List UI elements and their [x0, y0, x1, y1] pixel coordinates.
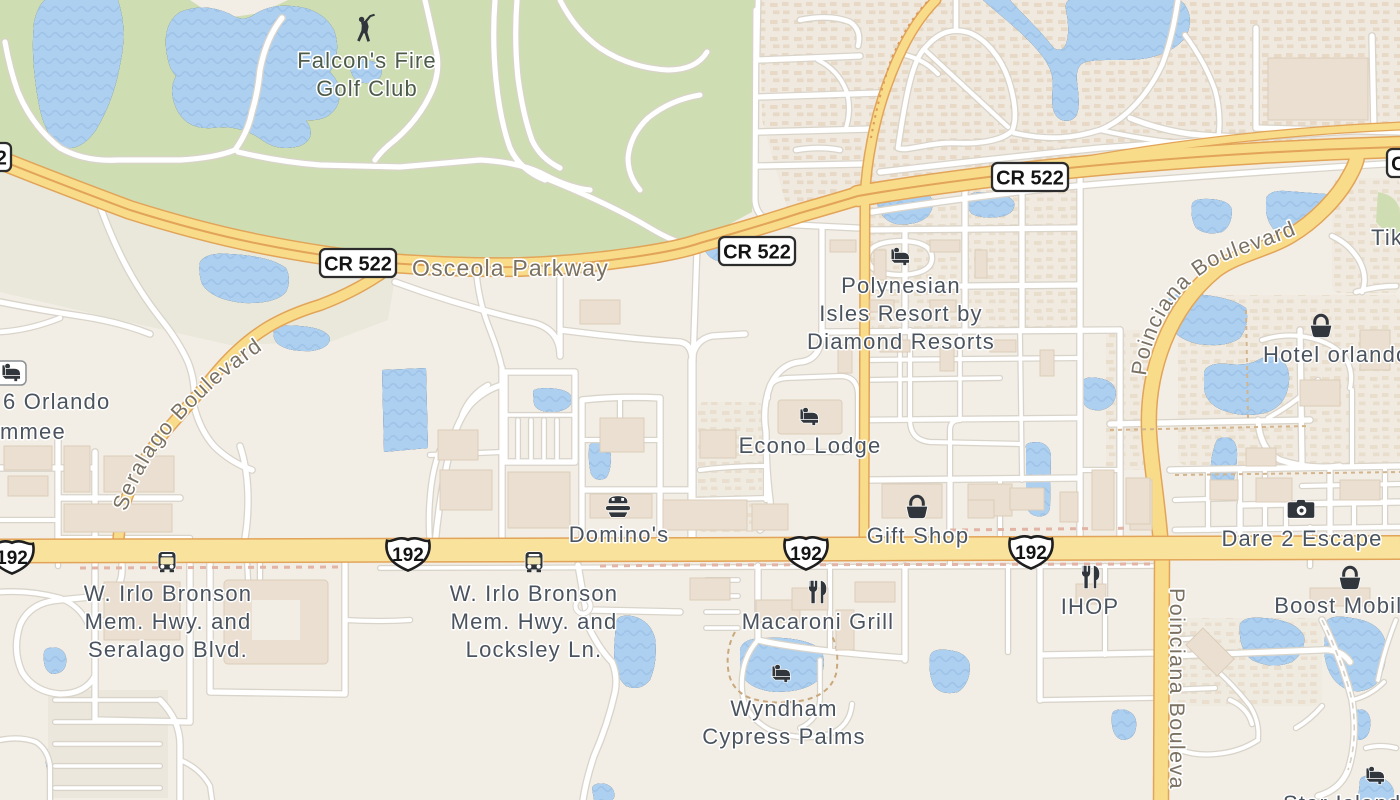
svg-text:192: 192 [392, 545, 424, 566]
svg-text:Domino's: Domino's [569, 522, 670, 547]
svg-text:Poinciana Bouleva: Poinciana Bouleva [1165, 588, 1189, 790]
svg-text:Macaroni Grill: Macaroni Grill [742, 609, 895, 634]
svg-text:CR 522: CR 522 [996, 168, 1064, 190]
svg-text:Tiki Island: Tiki Island [1371, 225, 1400, 250]
svg-text:192: 192 [0, 548, 28, 569]
svg-text:CR 522: CR 522 [324, 254, 392, 276]
svg-text:Gift Shop: Gift Shop [867, 523, 970, 548]
svg-text:IHOP: IHOP [1061, 594, 1120, 619]
svg-text:W. Irlo BronsonMem. Hwy. andLo: W. Irlo BronsonMem. Hwy. andLocksley Ln. [450, 581, 618, 662]
svg-text:Star Island: Star Island [1283, 791, 1400, 800]
svg-text:CR 522: CR 522 [0, 148, 7, 170]
svg-text:CR 522: CR 522 [1391, 154, 1400, 176]
svg-text:Osceola Parkway: Osceola Parkway [412, 255, 609, 281]
svg-text:W. Irlo BronsonMem. Hwy. andSe: W. Irlo BronsonMem. Hwy. andSeralago Blv… [84, 581, 252, 662]
svg-text:Boost Mobile: Boost Mobile [1274, 593, 1400, 618]
svg-text:mmee: mmee [0, 419, 66, 444]
svg-text:192: 192 [790, 544, 822, 565]
svg-text:CR 522: CR 522 [723, 242, 791, 264]
svg-text:Hotel orlando kiss: Hotel orlando kiss [1263, 342, 1400, 367]
svg-text:Econo Lodge: Econo Lodge [739, 433, 882, 458]
svg-text:Dare 2 Escape: Dare 2 Escape [1221, 526, 1382, 551]
svg-text:192: 192 [1015, 543, 1047, 564]
svg-text:6 Orlando: 6 Orlando [3, 389, 110, 414]
